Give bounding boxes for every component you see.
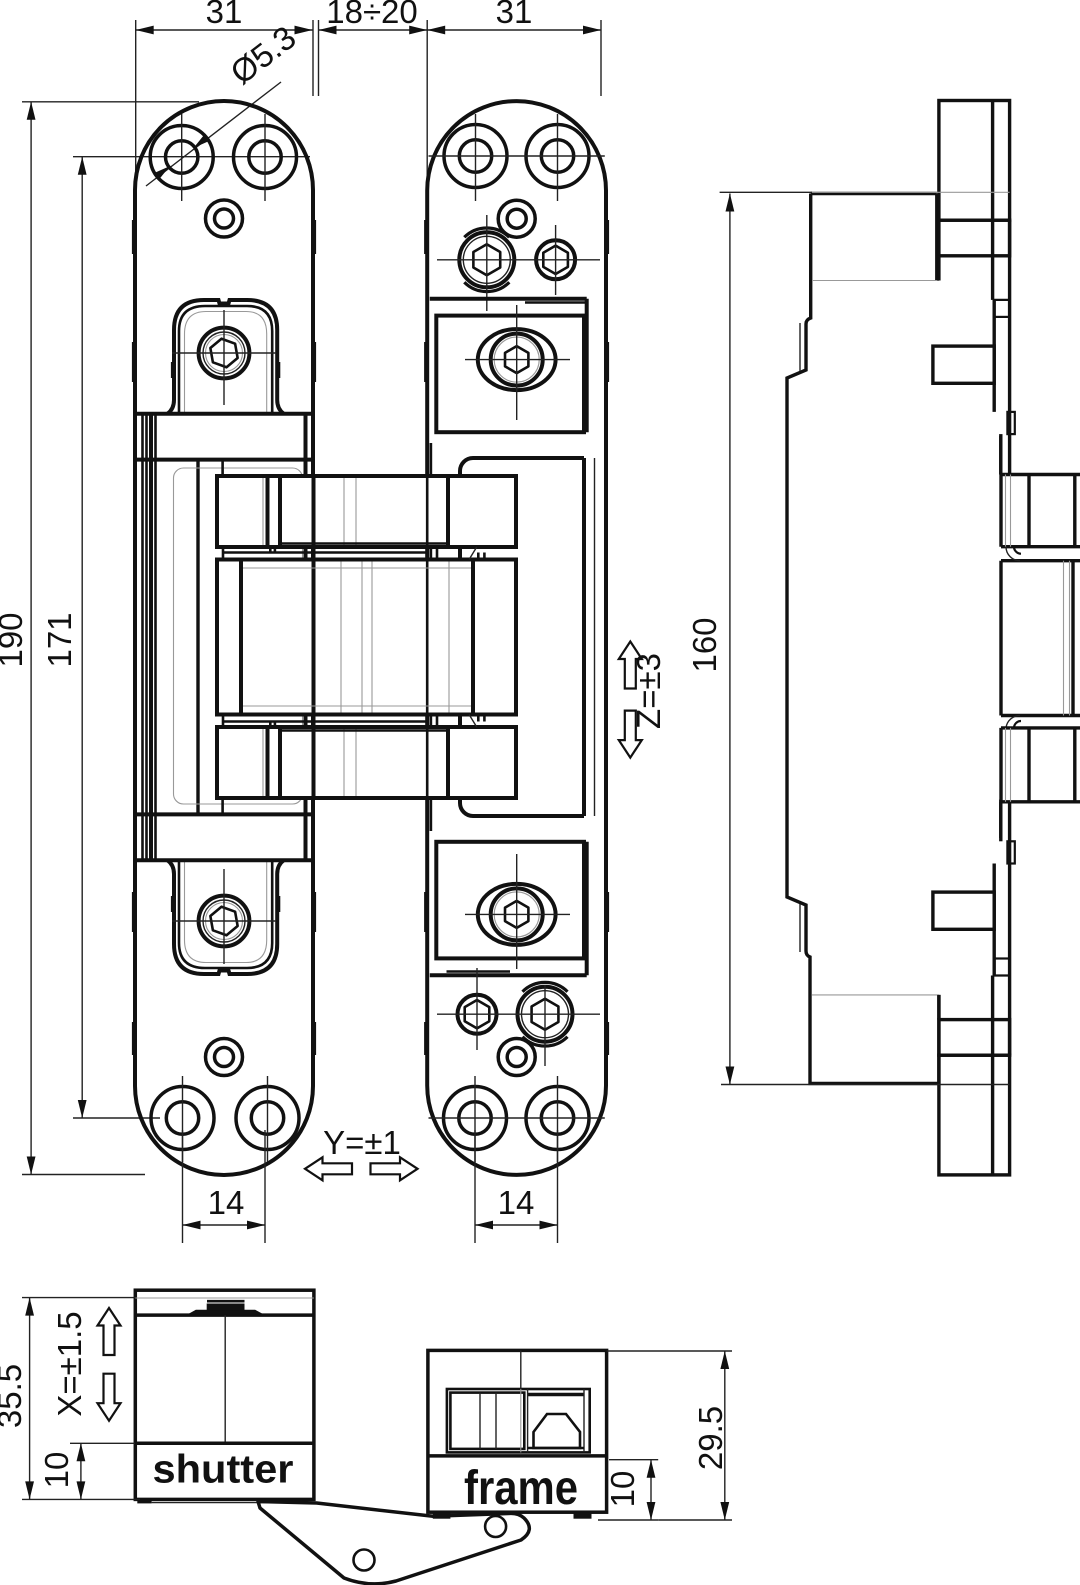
- svg-text:frame: frame: [464, 1462, 578, 1515]
- svg-text:190: 190: [0, 612, 29, 667]
- svg-text:18÷20: 18÷20: [326, 0, 418, 30]
- svg-text:14: 14: [498, 1184, 535, 1221]
- svg-text:31: 31: [206, 0, 243, 30]
- svg-text:14: 14: [208, 1184, 245, 1221]
- svg-text:10: 10: [604, 1471, 641, 1508]
- svg-text:35.5: 35.5: [0, 1364, 28, 1428]
- svg-text:171: 171: [41, 612, 78, 667]
- svg-text:29.5: 29.5: [692, 1406, 729, 1470]
- svg-text:10: 10: [38, 1452, 75, 1489]
- svg-text:31: 31: [496, 0, 533, 30]
- svg-text:Z=±3: Z=±3: [630, 653, 667, 729]
- svg-text:shutter: shutter: [153, 1448, 294, 1492]
- svg-text:X=±1.5: X=±1.5: [51, 1311, 88, 1416]
- svg-text:Y=±1: Y=±1: [323, 1124, 401, 1161]
- svg-text:160: 160: [686, 617, 723, 672]
